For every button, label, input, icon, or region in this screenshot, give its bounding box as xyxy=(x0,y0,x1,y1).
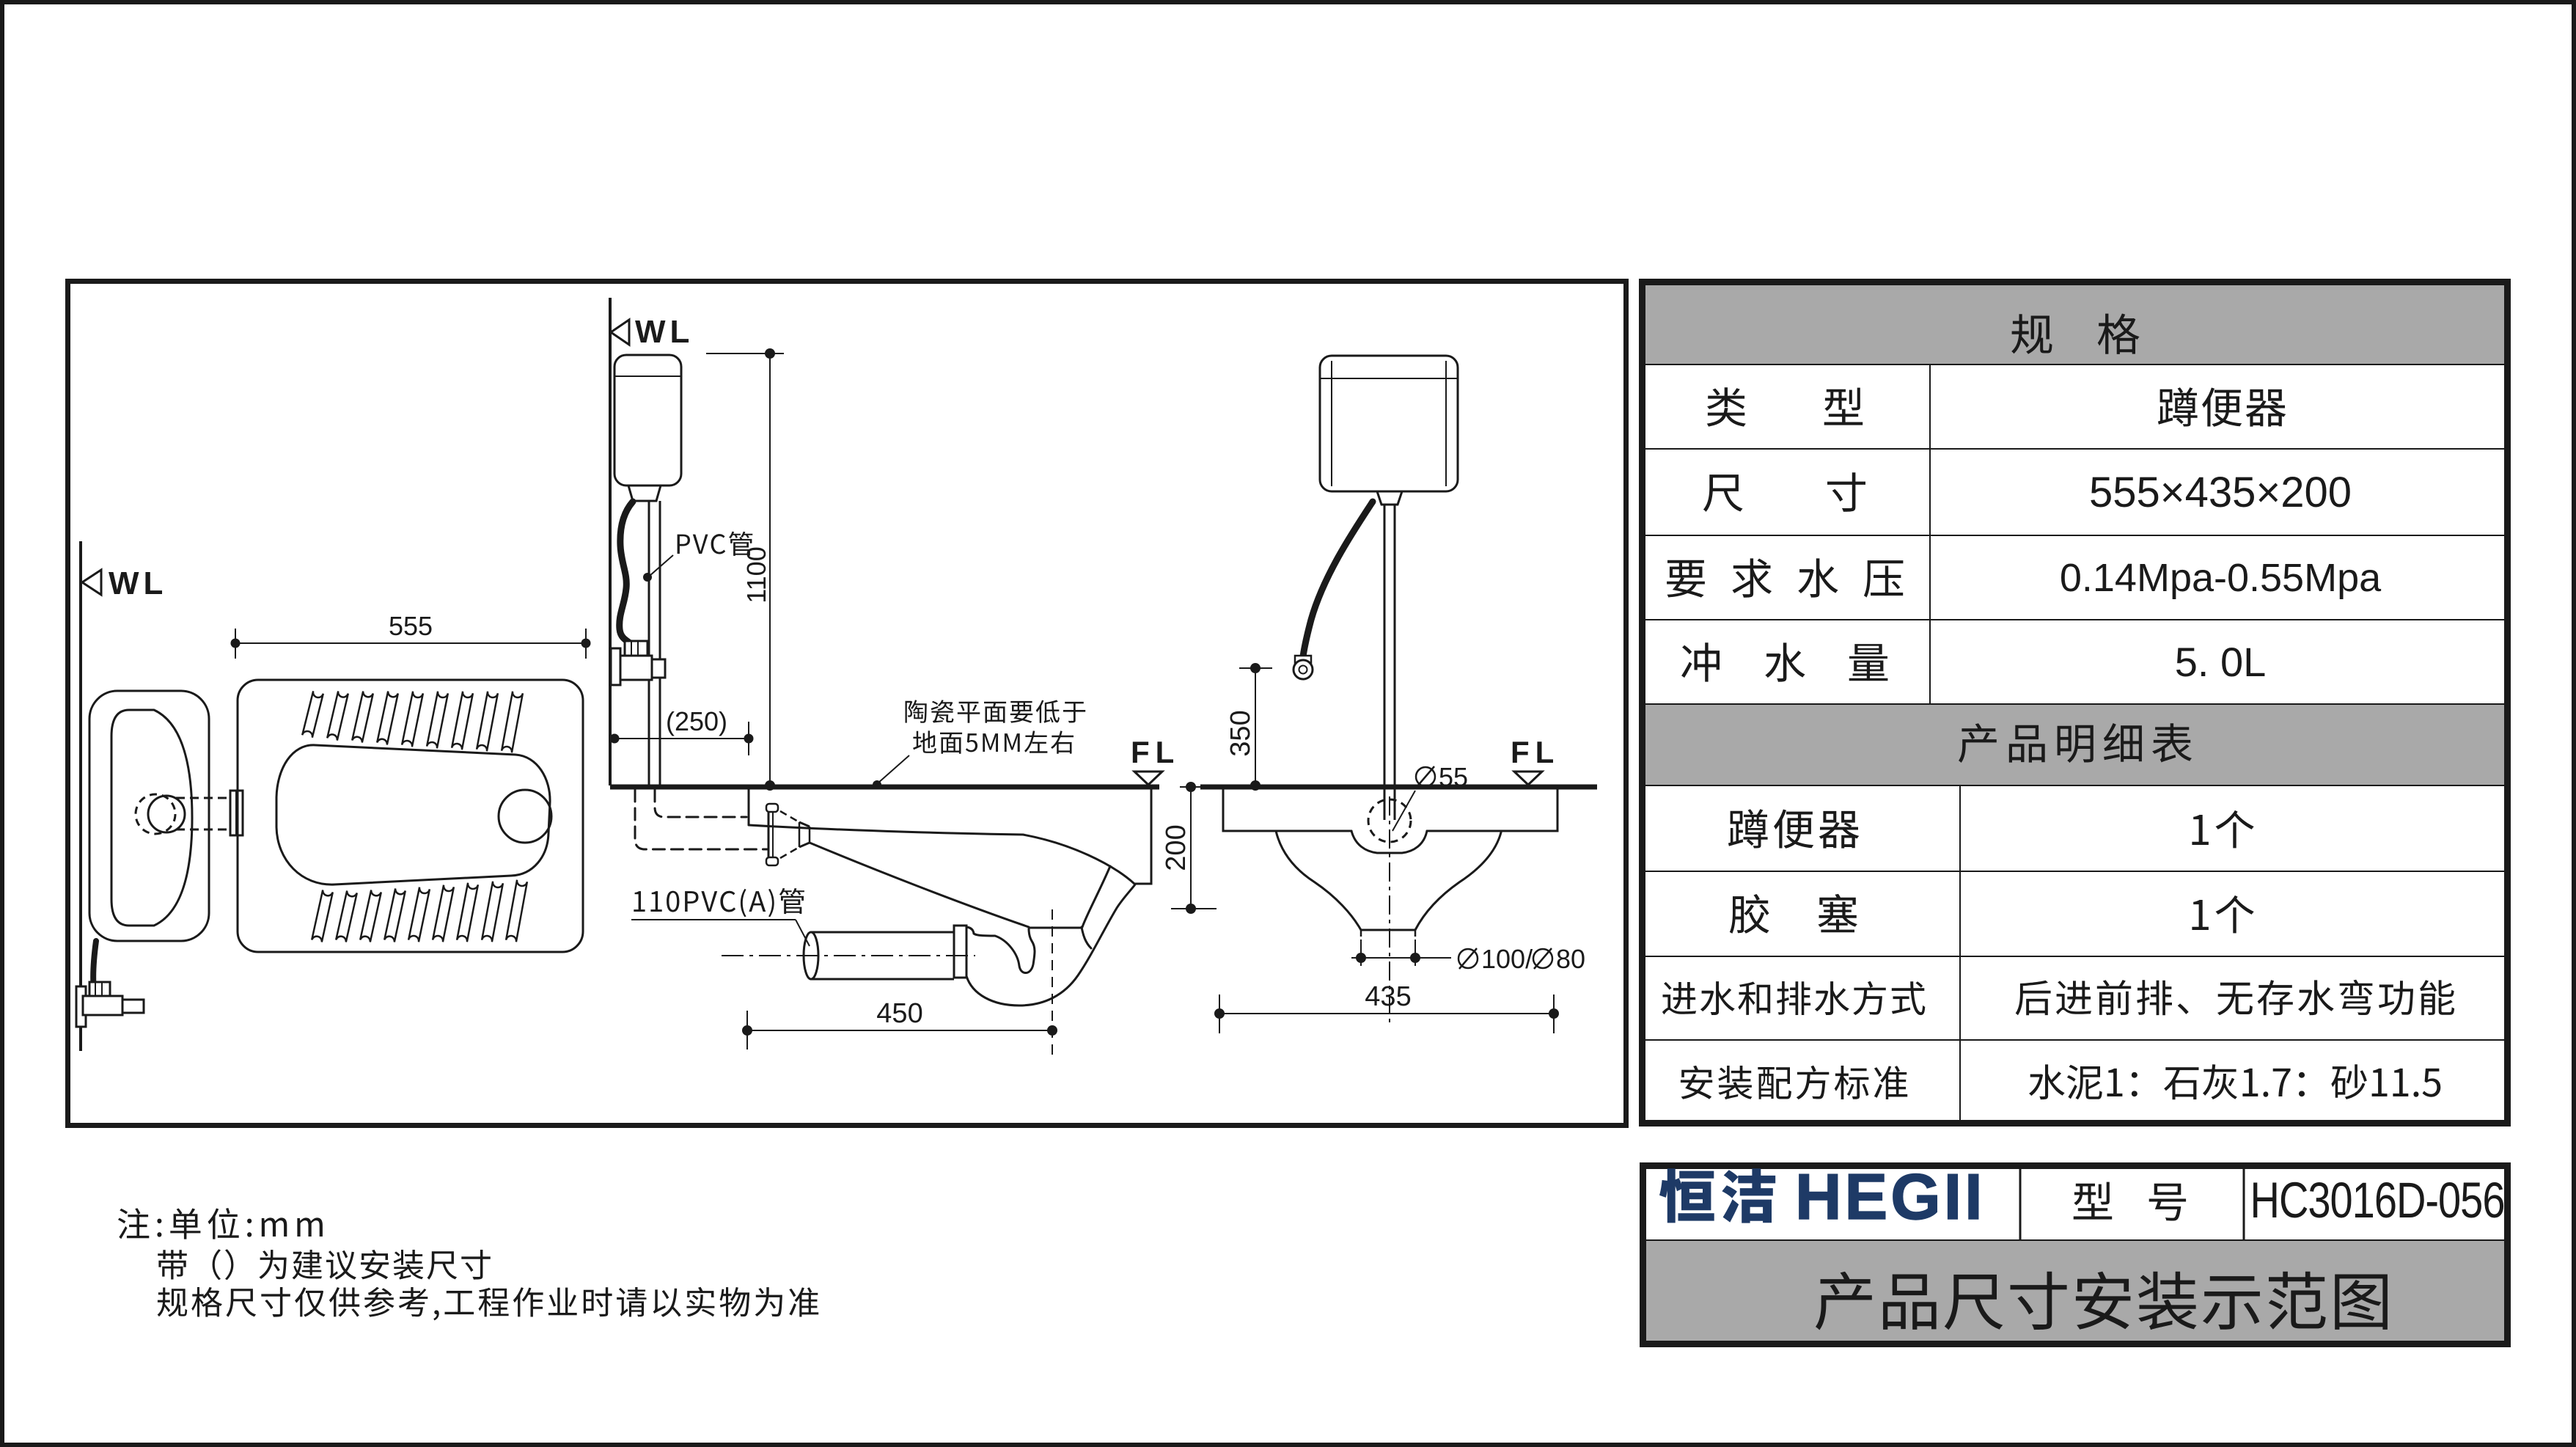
svg-text:5. 0L: 5. 0L xyxy=(2175,639,2267,685)
svg-text:FL: FL xyxy=(1511,735,1560,769)
svg-text:HC3016D-056: HC3016D-056 xyxy=(2250,1173,2505,1229)
svg-text:100/: 100/ xyxy=(1481,944,1533,974)
svg-text:555: 555 xyxy=(389,611,433,641)
svg-text:555×435×200: 555×435×200 xyxy=(2089,469,2352,516)
svg-text:HEGII: HEGII xyxy=(1795,1160,1986,1233)
svg-text:435: 435 xyxy=(1365,981,1411,1012)
svg-text:200: 200 xyxy=(1161,824,1192,871)
svg-text:450: 450 xyxy=(876,998,922,1029)
svg-text:0.14Mpa-0.55Mpa: 0.14Mpa-0.55Mpa xyxy=(2060,556,2382,600)
svg-text:(250): (250) xyxy=(666,706,727,736)
svg-text:350: 350 xyxy=(1225,710,1256,756)
svg-text:80: 80 xyxy=(1556,944,1585,974)
svg-text:WL: WL xyxy=(635,314,694,350)
svg-text:1100: 1100 xyxy=(741,546,771,603)
svg-text:FL: FL xyxy=(1131,735,1180,769)
svg-text:WL: WL xyxy=(109,565,167,601)
